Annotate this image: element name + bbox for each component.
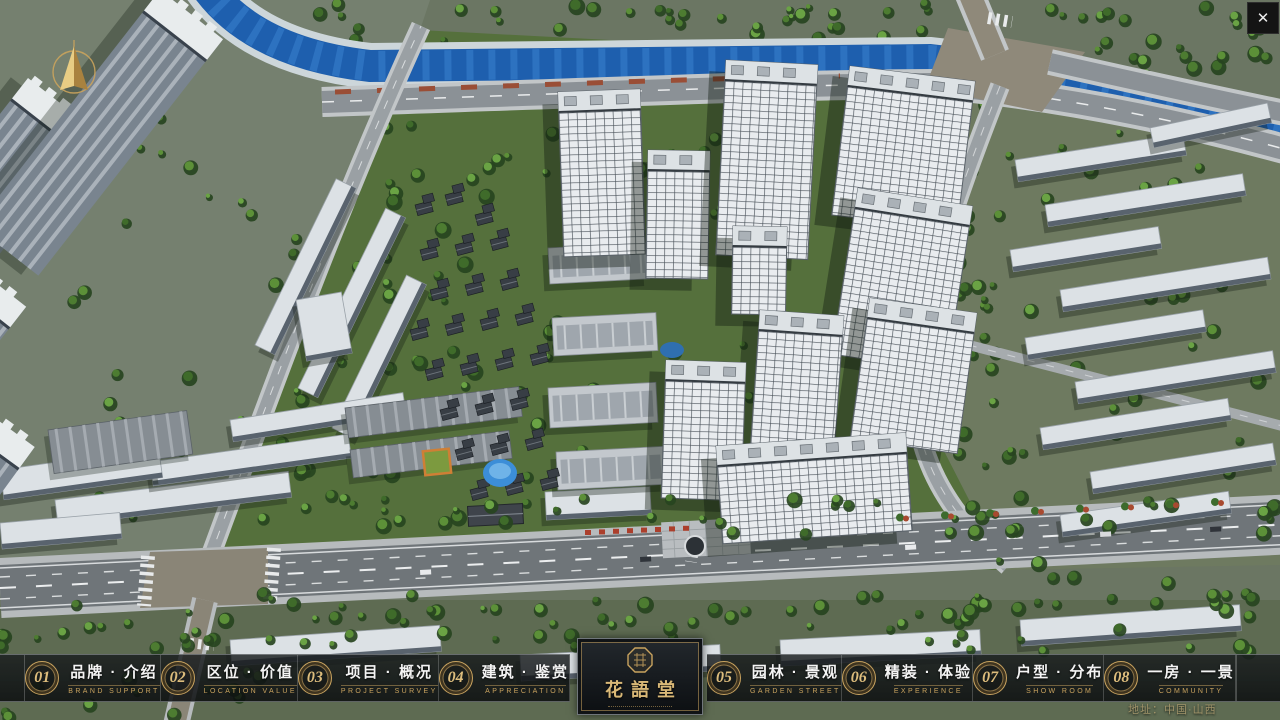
nav-title: 精装 · 体验	[885, 661, 972, 682]
nav-bar-spacer	[0, 655, 25, 701]
nav-title: 建筑 · 鉴赏	[482, 661, 569, 682]
nav-item-location[interactable]: 02 区位 · 价值 LOCATION VALUE	[161, 655, 298, 701]
nav-badge-02: 02	[161, 661, 195, 695]
nav-badge-01: 01	[25, 661, 59, 695]
nav-title: 户型 · 分布	[1016, 661, 1103, 682]
address-text: 地址：中国·山西	[1128, 701, 1217, 717]
nav-subtitle: GARDEN STREET	[750, 685, 841, 695]
presentation-screen: ✕ 01 品牌 · 介绍 BRAND SUPPORT 02 区位 · 价值 LO…	[0, 0, 1280, 720]
nav-subtitle: APPRECIATION	[485, 685, 565, 695]
nav-badge-06: 06	[842, 661, 876, 695]
nav-title: 品牌 · 介绍	[70, 661, 157, 682]
nav-item-interior[interactable]: 06 精装 · 体验 EXPERIENCE	[842, 655, 973, 701]
nav-badge-05: 05	[707, 661, 741, 695]
nav-subtitle: EXPERIENCE	[894, 685, 963, 695]
logo-title: 花語堂	[605, 676, 683, 702]
nav-subtitle: LOCATION VALUE	[204, 685, 297, 695]
nav-bar-spacer	[1236, 655, 1280, 701]
compass-icon	[44, 36, 106, 102]
nav-item-architecture[interactable]: 04 建筑 · 鉴赏 APPRECIATION	[439, 655, 570, 701]
nav-bar-right: 05 园林 · 景观 GARDEN STREET 06 精装 · 体验 EXPE…	[707, 654, 1280, 702]
nav-badge-07: 07	[973, 661, 1007, 695]
nav-title: 区位 · 价值	[207, 661, 294, 682]
nav-title: 园林 · 景观	[752, 661, 839, 682]
logo-divider	[608, 705, 672, 707]
nav-subtitle: SHOW ROOM	[1026, 685, 1093, 695]
nav-item-floorplan[interactable]: 07 户型 · 分布 SHOW ROOM	[973, 655, 1104, 701]
nav-bar-left: 01 品牌 · 介绍 BRAND SUPPORT 02 区位 · 价值 LOCA…	[0, 654, 570, 702]
nav-item-garden[interactable]: 05 园林 · 景观 GARDEN STREET	[707, 655, 842, 701]
nav-badge-04: 04	[439, 661, 473, 695]
nav-badge-08: 08	[1104, 661, 1138, 695]
nav-subtitle: BRAND SUPPORT	[68, 685, 159, 695]
nav-title: 一房 · 一景	[1147, 661, 1234, 682]
nav-badge-03: 03	[298, 661, 332, 695]
nav-subtitle: COMMUNITY	[1159, 685, 1224, 695]
masterplan-aerial-image	[0, 0, 1280, 720]
logo-seal-icon	[627, 647, 653, 673]
nav-item-views[interactable]: 08 一房 · 一景 COMMUNITY	[1104, 655, 1235, 701]
nav-subtitle: PROJECT SURVEY	[341, 685, 438, 695]
close-button[interactable]: ✕	[1247, 2, 1279, 34]
nav-item-brand[interactable]: 01 品牌 · 介绍 BRAND SUPPORT	[25, 655, 160, 701]
logo-plate[interactable]: 花語堂	[577, 638, 703, 715]
nav-title: 项目 · 概况	[346, 661, 433, 682]
nav-item-project[interactable]: 03 项目 · 概况 PROJECT SURVEY	[298, 655, 439, 701]
close-icon: ✕	[1257, 9, 1270, 27]
